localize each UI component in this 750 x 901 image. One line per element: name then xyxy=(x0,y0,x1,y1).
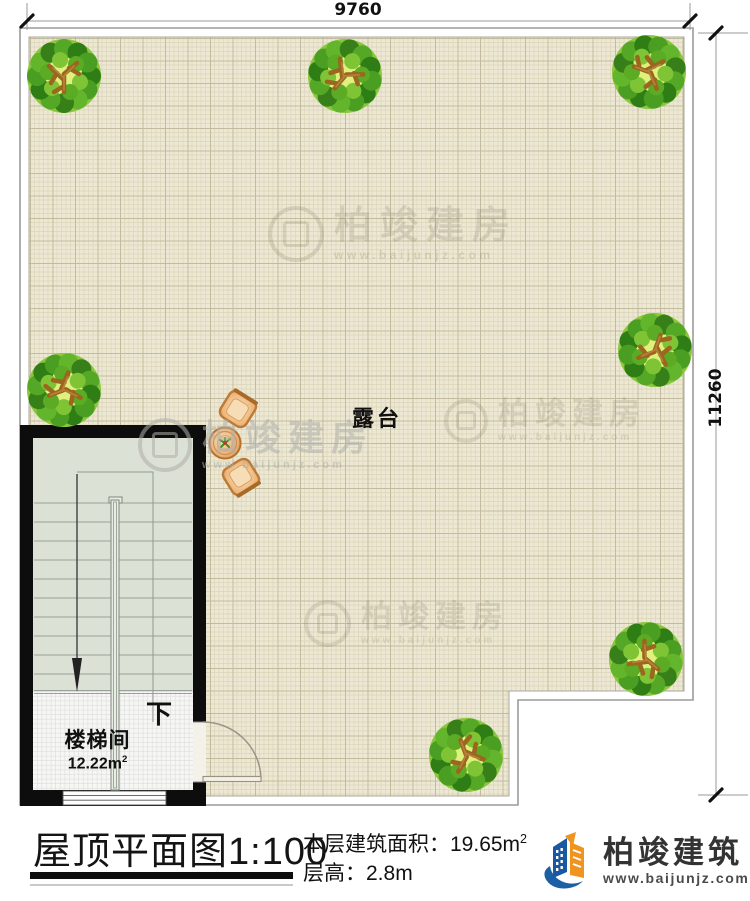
floor-height-line: 层高：2.8m xyxy=(303,857,413,887)
drawing-title-text: 屋顶平面图 xyxy=(33,831,228,873)
window xyxy=(63,791,166,805)
floor-area-sup: 2 xyxy=(520,832,527,846)
terrace-label: 露台 xyxy=(352,401,402,433)
roof-plan-page: 柏竣建房 www.baijunjz.com 柏竣建房 www.baijunjz.… xyxy=(0,0,750,901)
stair-room-area: 12.22m2 xyxy=(35,754,160,773)
dimension-width: 9760 xyxy=(318,0,398,20)
brand-name: 柏竣建筑 xyxy=(603,836,749,870)
title-underline-thin xyxy=(30,884,293,886)
dimension-height: 11260 xyxy=(706,358,726,438)
stair-room-label-group: 楼梯间 12.22m2 xyxy=(35,724,160,773)
door-leaf xyxy=(203,777,261,782)
floor-area-line: 本层建筑面积：19.65m2 xyxy=(303,828,527,858)
drawing-title: 屋顶平面图1:100 xyxy=(33,820,328,875)
brand-logo: 柏竣建筑 www.baijunjz.com xyxy=(543,830,749,892)
brand-url: www.baijunjz.com xyxy=(603,870,749,886)
floor-height-value: 2.8m xyxy=(366,862,413,885)
floor-area-value: 19.65m xyxy=(450,833,520,856)
tree-icon xyxy=(27,39,101,113)
title-underline-bar xyxy=(30,872,293,879)
floor-height-label: 层高： xyxy=(303,862,366,885)
stair-room-name: 楼梯间 xyxy=(35,724,160,754)
floor-area-label: 本层建筑面积： xyxy=(303,833,450,856)
stair-room-area-value: 12.22m xyxy=(68,755,122,772)
door-opening xyxy=(193,722,206,782)
stair-room-area-sup: 2 xyxy=(122,754,127,765)
patio-table xyxy=(210,428,241,459)
brand-logo-icon xyxy=(543,830,597,892)
